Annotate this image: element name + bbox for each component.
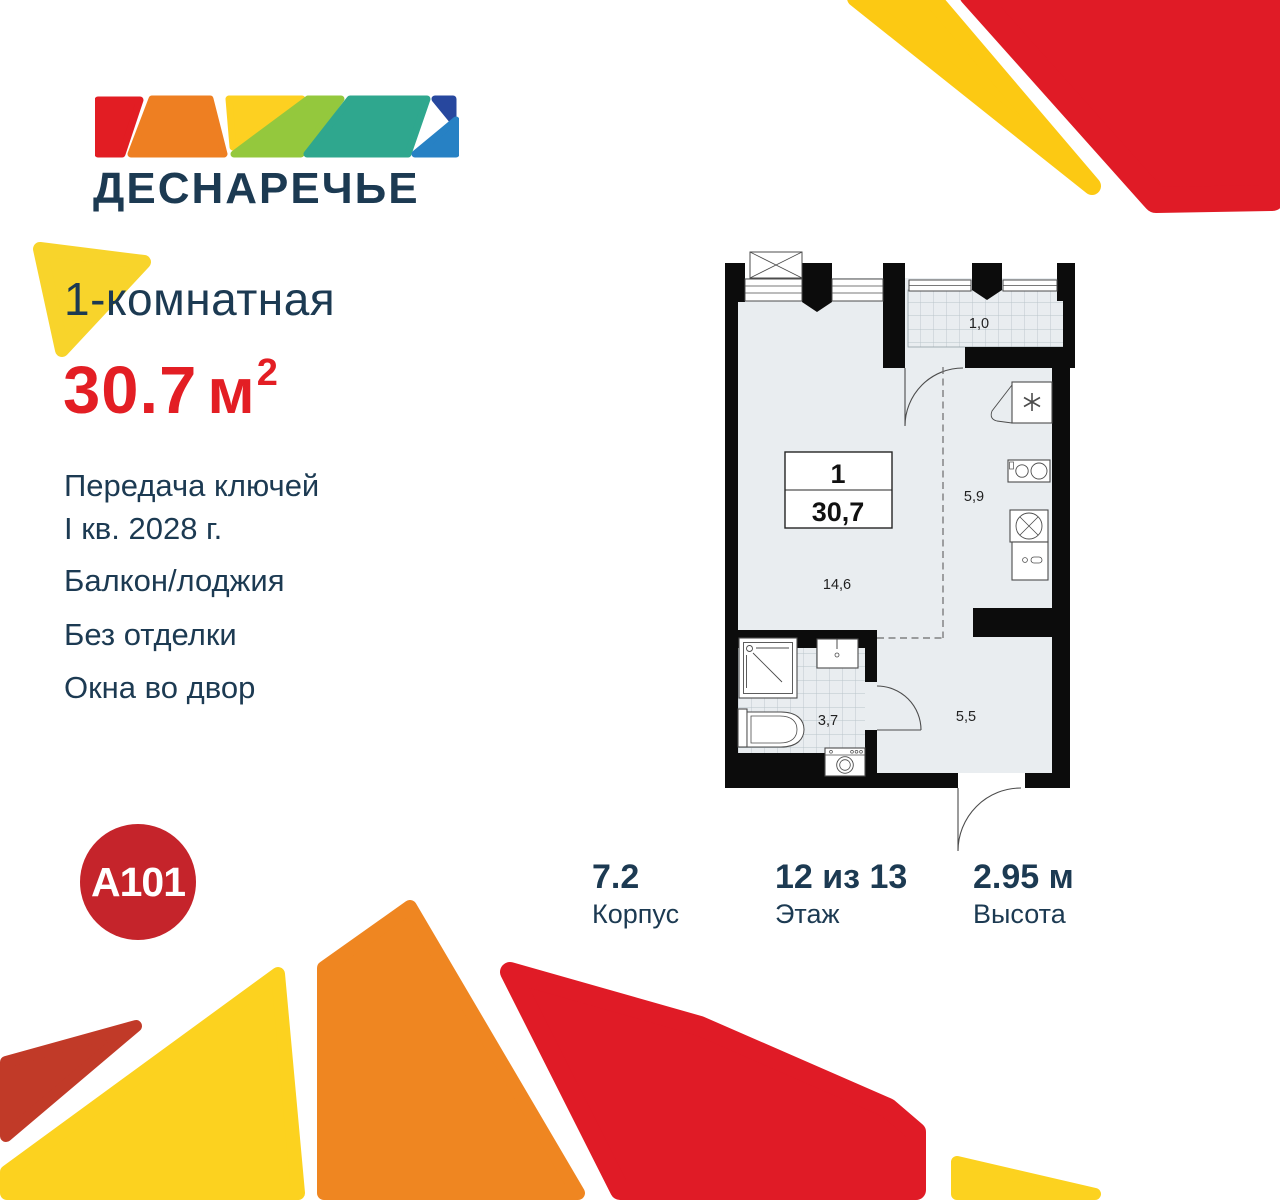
- kitchen-area-label: 5,9: [964, 489, 984, 505]
- yellow-small-wedge-shape: [957, 1162, 1095, 1194]
- listing-area: 30.7м2: [63, 352, 278, 429]
- feature-handover-line1: Передача ключей: [64, 464, 319, 507]
- spec-floor-label: Этаж: [775, 896, 907, 932]
- decoration-top-right: [820, 0, 1280, 240]
- entrance-door-arc: [958, 788, 1021, 851]
- spec-height-label: Высота: [973, 896, 1074, 932]
- window-left: [745, 279, 802, 301]
- spec-height: 2.95 м Высота: [973, 858, 1074, 932]
- window-mid: [832, 279, 883, 301]
- developer-logo-badge: A101: [80, 824, 196, 940]
- area-exponent: 2: [257, 352, 278, 394]
- feature-windows: Окна во двор: [64, 666, 255, 709]
- feature-handover-line2: I кв. 2028 г.: [64, 507, 319, 550]
- spec-floor-value: 12 из 13: [775, 858, 907, 896]
- spec-floor: 12 из 13 Этаж: [775, 858, 907, 932]
- red-shape: [510, 972, 916, 1190]
- project-name: ДЕСНАРЕЧЬЕ: [93, 164, 420, 214]
- project-logo-mosaic: [95, 95, 459, 159]
- hallway-area-label: 5,5: [956, 709, 976, 725]
- listing-card: ДЕСНАРЕЧЬЕ 1-комнатная 30.7м2 Передача к…: [0, 0, 1280, 1200]
- toilet-icon: [738, 709, 747, 747]
- listing-title: 1-комнатная: [64, 272, 335, 326]
- spec-building: 7.2 Корпус: [592, 858, 679, 932]
- decoration-bottom: [0, 900, 1280, 1200]
- feature-finishing: Без отделки: [64, 613, 237, 656]
- living-area-label: 14,6: [823, 577, 851, 593]
- plan-total-area: 30,7: [812, 497, 865, 527]
- bathroom-area-label: 3,7: [818, 713, 838, 729]
- spec-height-value: 2.95 м: [973, 858, 1074, 896]
- area-unit: м: [207, 355, 254, 427]
- kitchen-cabinet-icon: [1012, 542, 1048, 580]
- spec-building-value: 7.2: [592, 858, 679, 896]
- loggia-area-label: 1,0: [969, 316, 989, 332]
- floor-plan: 1 30,7 1,0 5,9 14,6 3,7 5,5: [725, 248, 1075, 858]
- plan-legend-box: 1 30,7: [785, 452, 892, 528]
- area-value: 30.7: [63, 353, 197, 428]
- spec-building-label: Корпус: [592, 896, 679, 932]
- feature-balcony: Балкон/лоджия: [64, 559, 284, 602]
- feature-handover: Передача ключей I кв. 2028 г.: [64, 464, 319, 550]
- plan-rooms-count: 1: [830, 459, 845, 489]
- developer-logo-text: A101: [91, 859, 185, 906]
